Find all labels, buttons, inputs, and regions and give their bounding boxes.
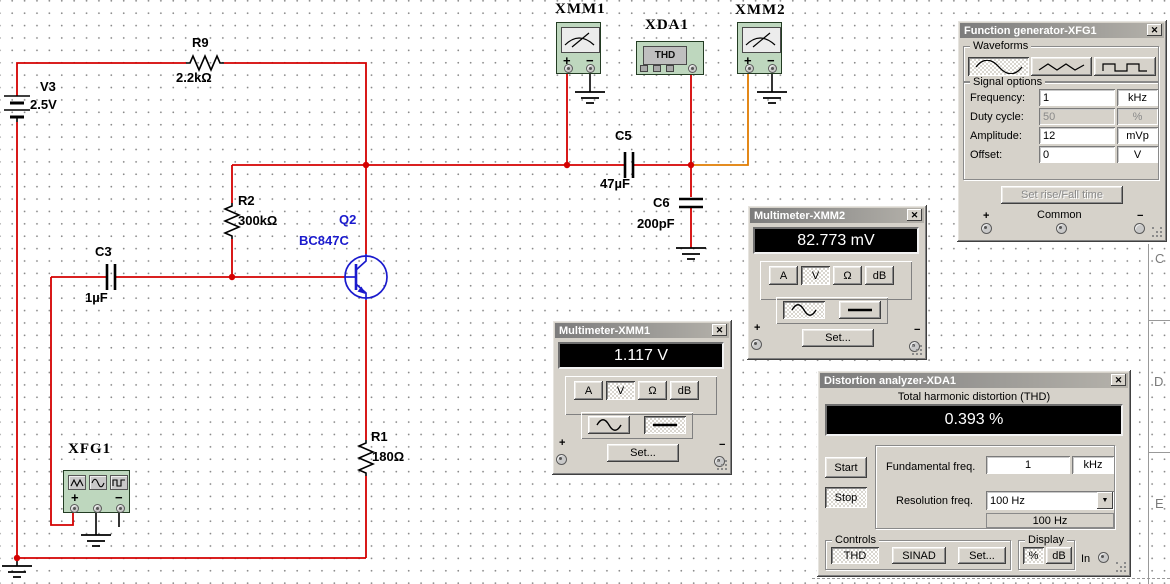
square-wave-button[interactable] <box>1094 57 1156 76</box>
label-r1-ref[interactable]: R1 <box>371 430 388 444</box>
chevron-down-icon[interactable]: ▼ <box>1097 492 1113 509</box>
battery-v3-symbol[interactable] <box>4 96 30 117</box>
start-button[interactable]: Start <box>825 457 867 478</box>
sine-wave-icon <box>89 475 107 490</box>
volts-button[interactable]: V <box>801 266 830 285</box>
plus-terminal-label: + <box>983 210 989 222</box>
amplitude-label: Amplitude: <box>970 130 1022 142</box>
close-icon[interactable]: ✕ <box>907 209 922 221</box>
label-r9-value[interactable]: 2.2kΩ <box>176 71 212 85</box>
window-title: Function generator-XFG1 <box>964 25 1097 37</box>
close-icon[interactable]: ✕ <box>712 324 727 336</box>
measurement-display: 82.773 mV <box>753 227 919 254</box>
fg-plus-terminal[interactable] <box>981 223 992 234</box>
offset-label: Offset: <box>970 149 1002 161</box>
fundamental-freq-input[interactable]: 1 <box>986 456 1070 474</box>
sine-wave-icon <box>790 304 818 316</box>
label-c6-value[interactable]: 200pF <box>637 217 675 231</box>
offset-unit[interactable]: V <box>1117 146 1158 163</box>
xfg1-plus-terminal[interactable] <box>70 504 79 513</box>
minus-terminal-label: − <box>1137 210 1143 222</box>
sinad-button[interactable]: SINAD <box>892 547 946 564</box>
capacitor-c3-symbol[interactable] <box>107 264 115 290</box>
fundamental-freq-unit[interactable]: kHz <box>1072 456 1114 474</box>
resistor-r9-symbol[interactable] <box>186 56 224 70</box>
xda1-instrument-icon[interactable]: THD <box>636 41 704 75</box>
in-terminal-label: In <box>1081 553 1090 565</box>
xmm1-minus-terminal[interactable] <box>586 64 595 73</box>
thd-display: 0.393 % <box>825 404 1123 436</box>
window-titlebar[interactable]: Distortion analyzer-XDA1 <box>820 373 1128 388</box>
amplitude-input[interactable]: 12 <box>1039 127 1115 144</box>
thd-mini-display: THD <box>643 46 687 65</box>
resize-grip[interactable] <box>717 460 728 471</box>
fundamental-freq-label: Fundamental freq. <box>886 461 975 473</box>
duty-cycle-input: 50 <box>1039 108 1115 125</box>
square-wave-icon <box>1099 60 1151 74</box>
capacitor-c5-symbol[interactable] <box>625 152 633 178</box>
frequency-input[interactable]: 1 <box>1039 89 1115 106</box>
fg-common-terminal[interactable] <box>1056 223 1067 234</box>
percent-button[interactable]: % <box>1023 547 1044 564</box>
label-v3-value[interactable]: 2.5V <box>30 98 57 112</box>
label-q2-ref[interactable]: Q2 <box>339 213 356 227</box>
duty-cycle-label: Duty cycle: <box>970 111 1024 123</box>
indicator-square-icon <box>640 65 648 72</box>
triangle-wave-button[interactable] <box>1031 57 1092 76</box>
label-q2-value[interactable]: BC847C <box>299 234 349 248</box>
resize-grip[interactable] <box>1152 227 1163 238</box>
close-icon[interactable]: ✕ <box>1111 374 1126 386</box>
multisim-schematic-canvas: C D E <box>0 0 1170 584</box>
display-group-label: Display <box>1025 534 1067 546</box>
resistor-r1-symbol[interactable] <box>359 440 373 476</box>
window-title: Distortion analyzer-XDA1 <box>824 375 956 387</box>
transistor-q2-symbol[interactable] <box>345 254 387 300</box>
label-c5-value[interactable]: 47µF <box>600 177 630 191</box>
label-r1-value[interactable]: 180Ω <box>372 450 404 464</box>
meter-plus-terminal[interactable] <box>751 339 762 350</box>
waveforms-group-label: Waveforms <box>970 40 1031 52</box>
minus-terminal-label: − <box>719 439 725 451</box>
window-titlebar[interactable]: Function generator-XFG1 <box>960 23 1164 38</box>
label-r2-value[interactable]: 300kΩ <box>238 214 277 228</box>
multimeter-xmm2-window[interactable]: Multimeter-XMM2 ✕ 82.773 mV A V Ω dB + −… <box>747 205 927 360</box>
label-c3-ref[interactable]: C3 <box>95 245 112 259</box>
distortion-analyzer-window[interactable]: Distortion analyzer-XDA1 ✕ Total harmoni… <box>817 370 1131 577</box>
display-group: Display % dB <box>1018 540 1075 570</box>
amps-button[interactable]: A <box>574 381 603 400</box>
xda1-input-terminal[interactable] <box>688 64 697 73</box>
dc-mode-button[interactable] <box>644 416 686 434</box>
thd-caption: Total harmonic distortion (THD) <box>817 391 1131 403</box>
label-r2-ref[interactable]: R2 <box>238 194 255 208</box>
thd-button[interactable]: THD <box>831 547 879 564</box>
meter-plus-terminal[interactable] <box>556 454 567 465</box>
dc-mode-button[interactable] <box>839 301 881 319</box>
sine-wave-icon <box>595 419 623 431</box>
controls-group: Controls THD SINAD Set... <box>825 540 1011 570</box>
label-r9-ref[interactable]: R9 <box>192 36 209 50</box>
ac-mode-button[interactable] <box>588 416 630 434</box>
set-button[interactable]: Set... <box>958 547 1006 564</box>
triangle-wave-icon <box>68 475 86 490</box>
resolution-freq-dropdown[interactable]: 100 Hz ▼ <box>986 491 1114 510</box>
meter-face-icon <box>561 27 600 53</box>
multimeter-xmm1-window[interactable]: Multimeter-XMM1 ✕ 1.117 V A V Ω dB + − S… <box>552 320 732 475</box>
label-c3-value[interactable]: 1µF <box>85 291 108 305</box>
label-v3-ref[interactable]: V3 <box>40 80 56 94</box>
minus-terminal-label: − <box>115 492 123 504</box>
meter-face-icon <box>742 27 781 53</box>
common-terminal-label: Common <box>1037 209 1082 221</box>
db-button[interactable]: dB <box>1046 547 1072 564</box>
resolution-freq-readout: 100 Hz <box>986 513 1114 528</box>
controls-group-label: Controls <box>832 534 879 546</box>
resize-grip[interactable] <box>912 345 923 356</box>
frequency-group: Fundamental freq. 1 kHz Resolution freq.… <box>875 445 1115 529</box>
xmm2-instrument-icon[interactable]: + − <box>737 22 782 74</box>
label-c5-ref[interactable]: C5 <box>615 129 632 143</box>
frequency-unit[interactable]: kHz <box>1117 89 1158 106</box>
label-xmm2-ref[interactable]: XMM2 <box>735 3 786 17</box>
set-button[interactable]: Set... <box>607 444 679 462</box>
label-xfg1-ref[interactable]: XFG1 <box>68 442 111 456</box>
label-xda1-ref[interactable]: XDA1 <box>645 18 689 32</box>
measurement-display: 1.117 V <box>558 342 724 369</box>
analyzer-in-terminal[interactable] <box>1098 552 1109 563</box>
dc-line-icon <box>652 422 678 428</box>
xmm2-plus-terminal[interactable] <box>745 64 754 73</box>
set-button[interactable]: Set... <box>802 329 874 347</box>
wire-orange-xmm2[interactable] <box>691 71 748 165</box>
ohms-button[interactable]: Ω <box>833 266 862 285</box>
sine-wave-icon <box>973 60 1025 74</box>
resolution-freq-value: 100 Hz <box>990 495 1025 507</box>
ohms-button[interactable]: Ω <box>638 381 667 400</box>
resize-grip[interactable] <box>1116 562 1127 573</box>
amps-button[interactable]: A <box>769 266 798 285</box>
triangle-wave-icon <box>1036 60 1088 74</box>
signal-options-group: Signal options Frequency: 1 kHz Duty cyc… <box>963 82 1159 180</box>
frequency-label: Frequency: <box>970 92 1025 104</box>
xmm2-minus-terminal[interactable] <box>768 64 777 73</box>
signal-options-group-label: Signal options <box>970 76 1045 88</box>
duty-cycle-unit: % <box>1117 108 1158 125</box>
amplitude-unit[interactable]: mVp <box>1117 127 1158 144</box>
xmm1-instrument-icon[interactable]: + − <box>556 22 601 74</box>
window-titlebar[interactable]: Multimeter-XMM2 <box>750 208 924 223</box>
indicator-square-icon <box>666 65 674 72</box>
resistor-r2-symbol[interactable] <box>225 203 239 239</box>
xfg1-common-terminal[interactable] <box>93 504 102 513</box>
ac-mode-button[interactable] <box>783 301 825 319</box>
function-generator-window[interactable]: Function generator-XFG1 ✕ Waveforms Sign… <box>957 20 1167 242</box>
capacitor-c6-symbol[interactable] <box>679 199 703 207</box>
window-titlebar[interactable]: Multimeter-XMM1 <box>555 323 729 338</box>
xfg1-minus-terminal[interactable] <box>116 504 125 513</box>
minus-terminal-label: − <box>914 324 920 336</box>
plus-terminal-label: + <box>71 492 79 504</box>
xmm1-plus-terminal[interactable] <box>564 64 573 73</box>
label-xmm1-ref[interactable]: XMM1 <box>555 2 606 16</box>
db-button[interactable]: dB <box>670 381 699 400</box>
set-rise-fall-button: Set rise/Fall time <box>1001 186 1123 204</box>
volts-button[interactable]: V <box>606 381 635 400</box>
xfg1-instrument-icon[interactable]: + − <box>63 470 130 513</box>
square-wave-icon <box>110 475 128 490</box>
label-c6-ref[interactable]: C6 <box>653 196 670 210</box>
fg-minus-terminal[interactable] <box>1134 223 1145 234</box>
db-button[interactable]: dB <box>865 266 894 285</box>
ground-wires[interactable] <box>17 71 772 566</box>
resolution-freq-label: Resolution freq. <box>896 495 973 507</box>
plus-terminal-label: + <box>754 322 760 334</box>
window-title: Multimeter-XMM2 <box>754 210 845 222</box>
sine-wave-button[interactable] <box>968 57 1029 76</box>
stop-button[interactable]: Stop <box>825 487 867 508</box>
offset-input[interactable]: 0 <box>1039 146 1115 163</box>
dc-line-icon <box>847 307 873 313</box>
plus-terminal-label: + <box>559 437 565 449</box>
close-icon[interactable]: ✕ <box>1147 24 1162 36</box>
window-title: Multimeter-XMM1 <box>559 325 650 337</box>
indicator-square-icon <box>653 65 661 72</box>
